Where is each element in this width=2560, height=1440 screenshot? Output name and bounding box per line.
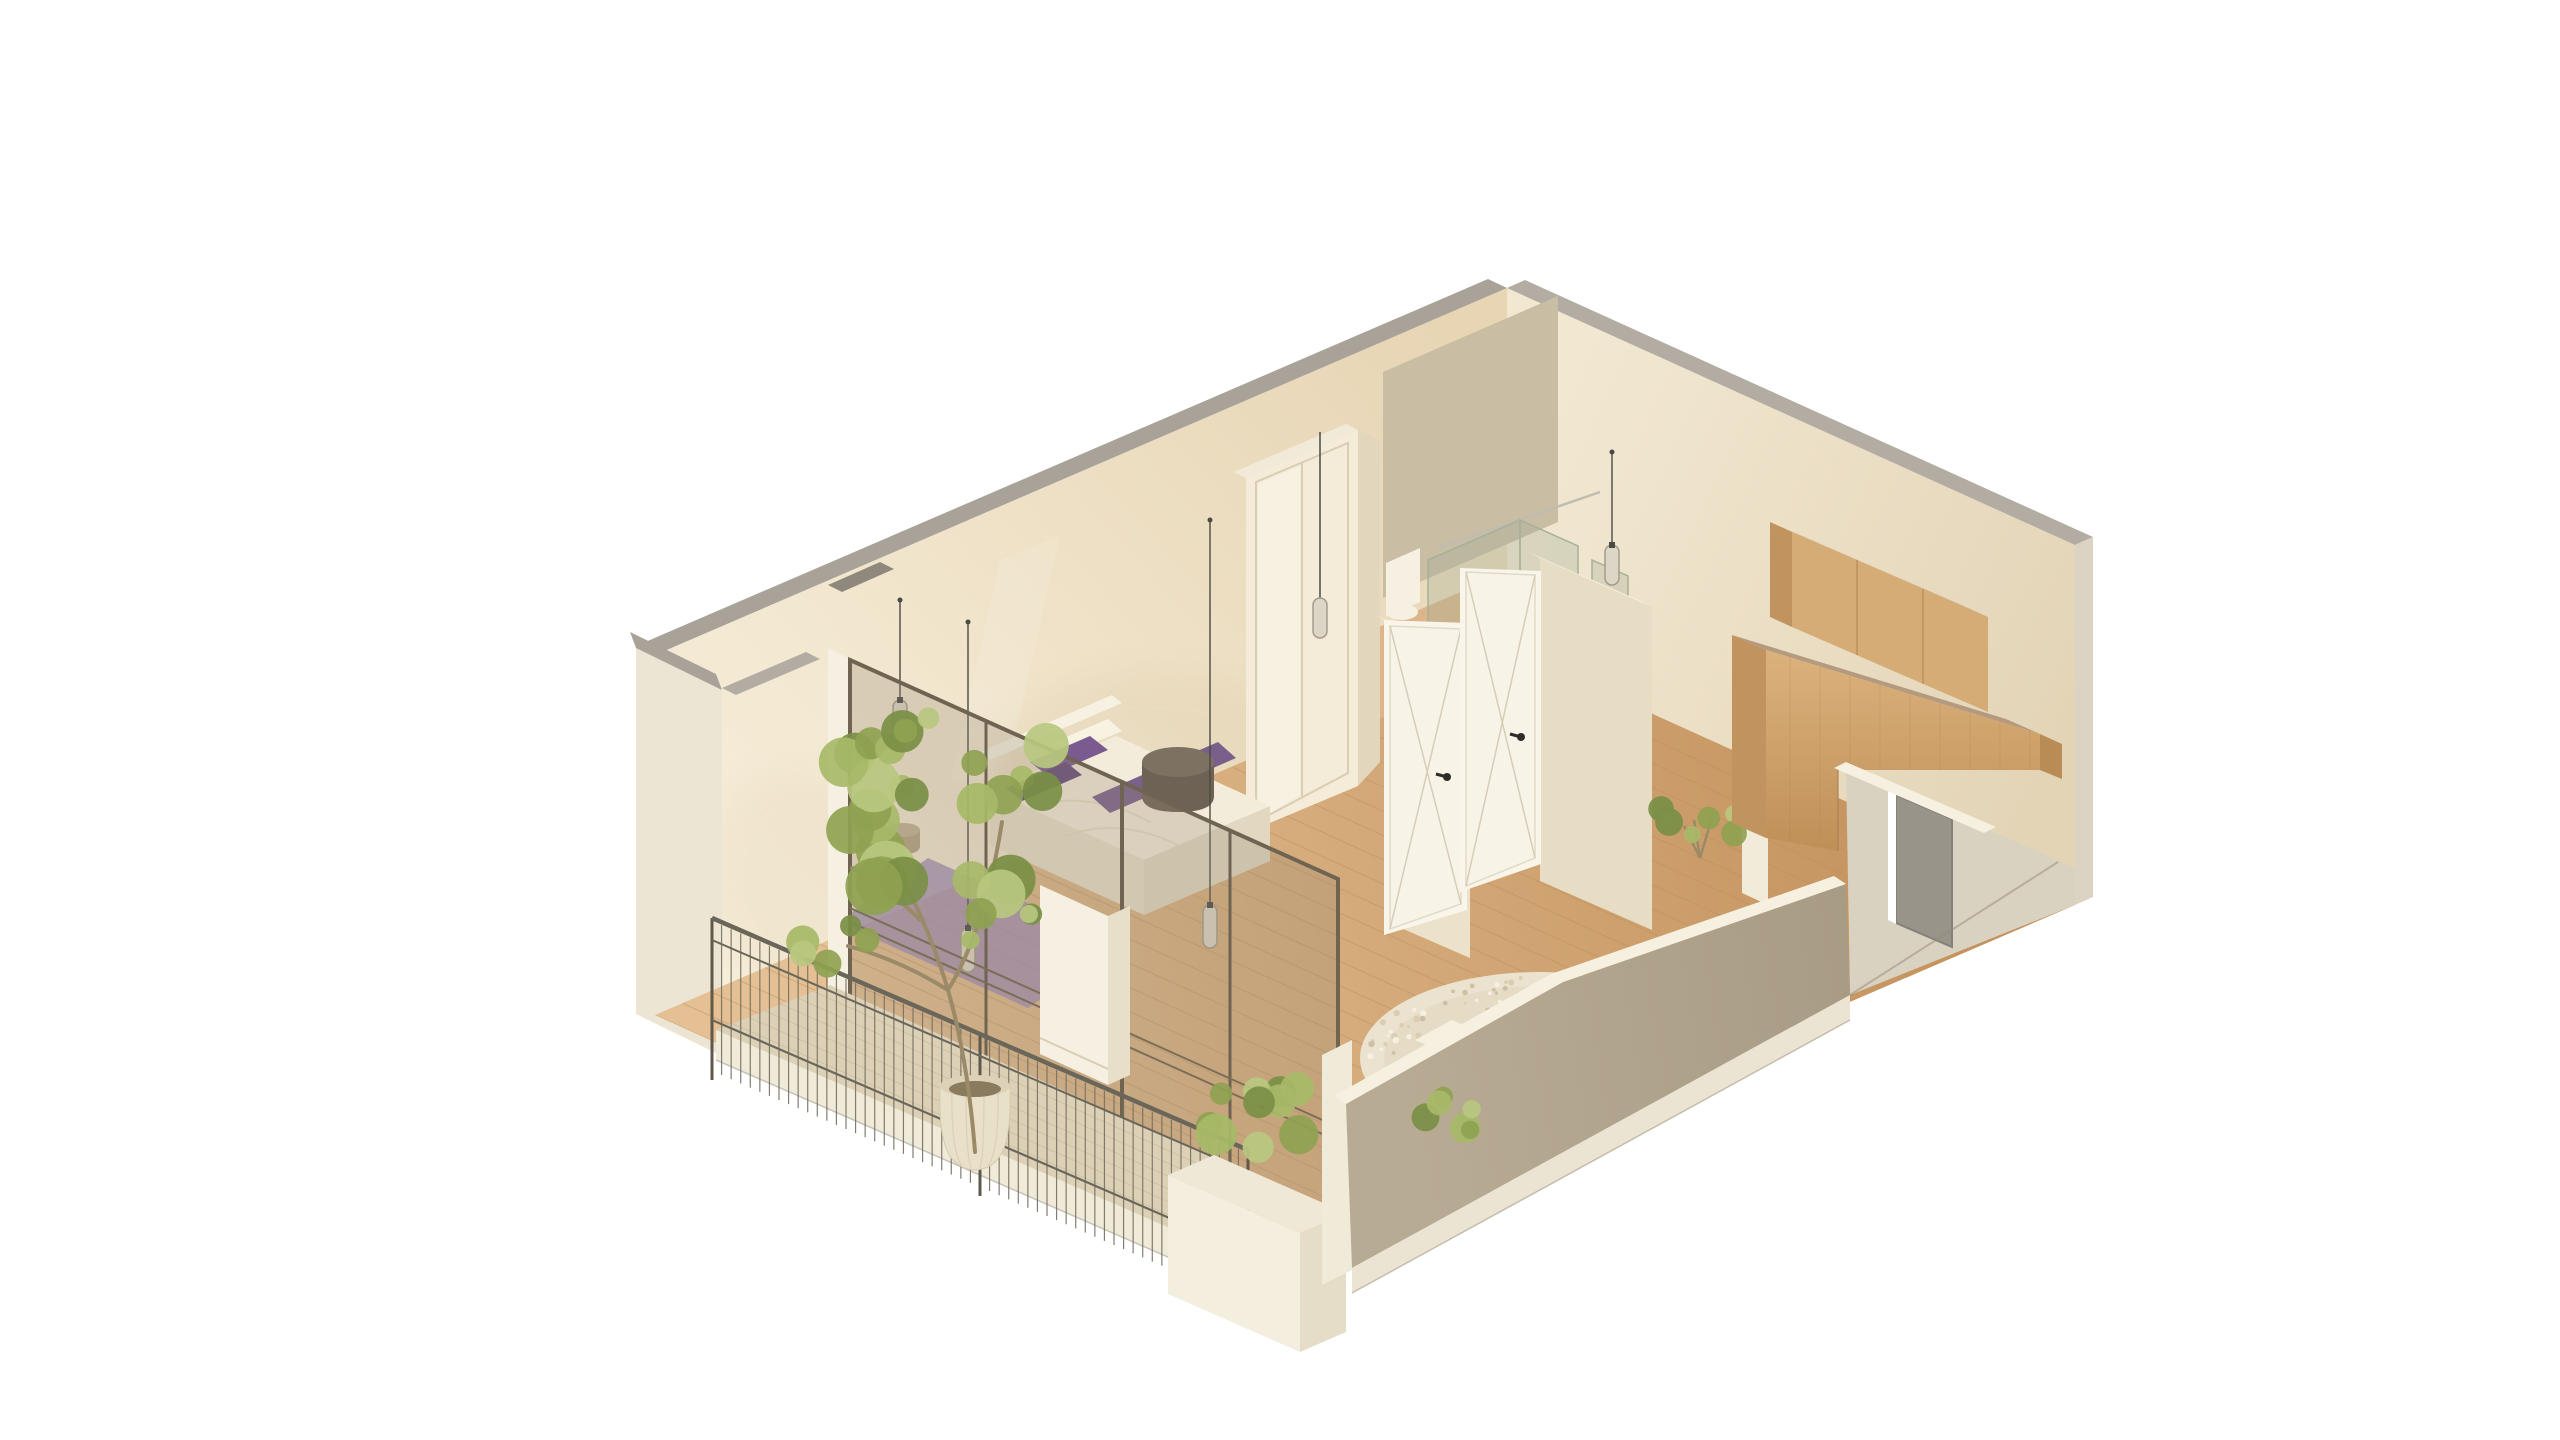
counter-left-side <box>1732 635 1766 838</box>
facade-pier <box>1040 885 1108 1085</box>
entry-door-jamb <box>1888 790 1896 924</box>
wardrobe-side <box>1358 430 1380 786</box>
entry-gray-door <box>1896 795 1952 947</box>
wardrobe <box>1234 424 1380 833</box>
upper-cabinet-side <box>1770 522 1792 627</box>
dark-pouf-top <box>1142 747 1214 777</box>
tree-pot-soil <box>949 1081 1001 1097</box>
tree-pot <box>940 1086 1010 1170</box>
parapet-left-edge <box>1322 1040 1352 1285</box>
apartment-isometric-svg <box>0 0 2560 1440</box>
wardrobe-pendant-lamp <box>1313 598 1327 638</box>
floor-plan-render <box>0 0 2560 1440</box>
toilet-seat <box>1386 604 1418 620</box>
facade-pier-side <box>1108 906 1130 1085</box>
northeast-wall-outer-edge <box>2075 537 2093 905</box>
planter-shrub <box>1196 1072 1319 1163</box>
partition-2-face <box>1540 558 1652 930</box>
wardrobe-door-highlight <box>1258 466 1300 820</box>
